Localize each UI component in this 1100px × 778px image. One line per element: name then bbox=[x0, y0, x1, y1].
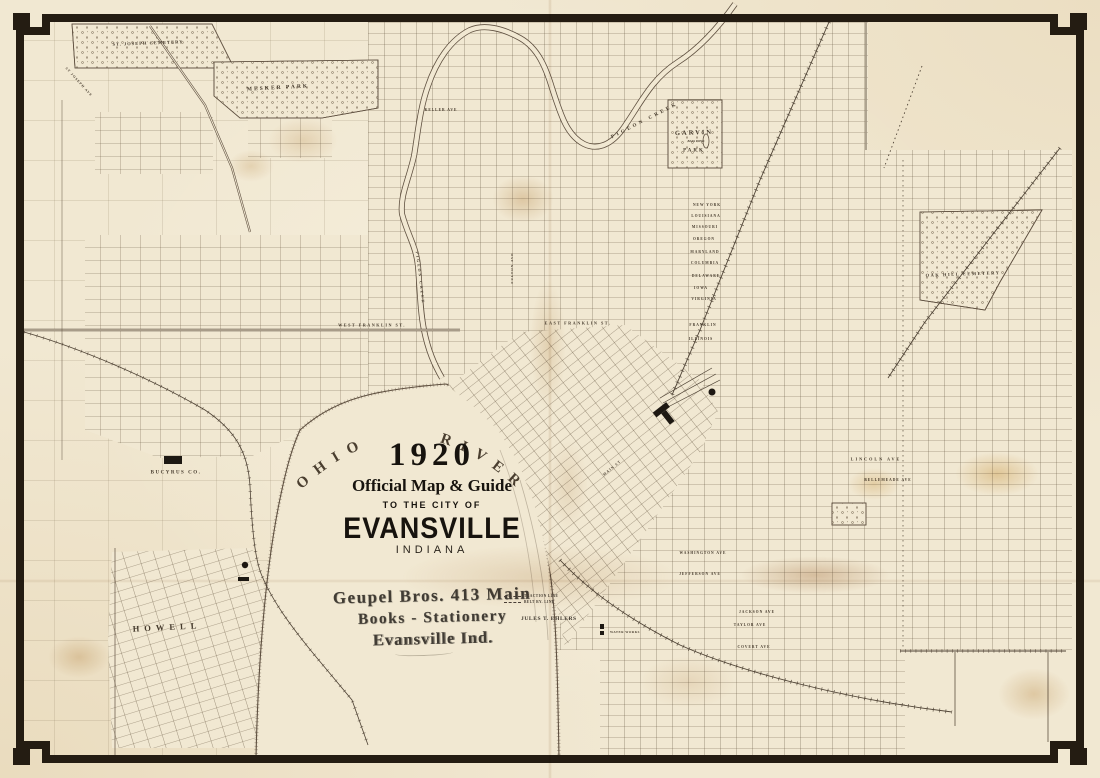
legend-label: TRACTION LINE bbox=[524, 594, 558, 598]
legend-dash-icon bbox=[504, 602, 521, 603]
water-works-block bbox=[600, 631, 604, 635]
legend-row-1: BELT RY. LINE bbox=[504, 599, 558, 605]
stamp-line-2: Books - Stationery bbox=[330, 606, 535, 629]
pump-house bbox=[242, 562, 248, 568]
title-subtitle: Official Map & Guide bbox=[337, 477, 527, 495]
gas-tank bbox=[709, 389, 716, 396]
corner-ornament-br bbox=[1070, 748, 1087, 765]
mill-block bbox=[238, 577, 249, 581]
legend-label: BELT RY. LINE bbox=[524, 600, 555, 604]
corner-ornament-tr bbox=[1070, 13, 1087, 30]
title-block: 1920 Official Map & Guide TO THE CITY OF… bbox=[337, 438, 527, 557]
map-legend: TRACTION LINEBELT RY. LINE bbox=[504, 593, 558, 605]
title-city: EVANSVILLE bbox=[337, 513, 527, 544]
legend-dash-icon bbox=[504, 596, 521, 597]
map-sheet: { "title_block": { "year": "1920", "line… bbox=[0, 0, 1100, 778]
corner-ornament-bl bbox=[13, 748, 30, 765]
engraver-credit: JULES T. EHLERS bbox=[521, 616, 577, 622]
title-state: INDIANA bbox=[337, 545, 527, 557]
corner-ornament-tl bbox=[13, 13, 30, 30]
bass-pond-shape bbox=[703, 134, 709, 148]
title-year: 1920 bbox=[337, 438, 527, 473]
bucyrus-works-block bbox=[164, 456, 182, 464]
map-canvas: OHIO RIVER bbox=[0, 0, 1100, 778]
title-to-the-city-of: TO THE CITY OF bbox=[337, 501, 527, 510]
water-plant-block bbox=[600, 624, 604, 629]
